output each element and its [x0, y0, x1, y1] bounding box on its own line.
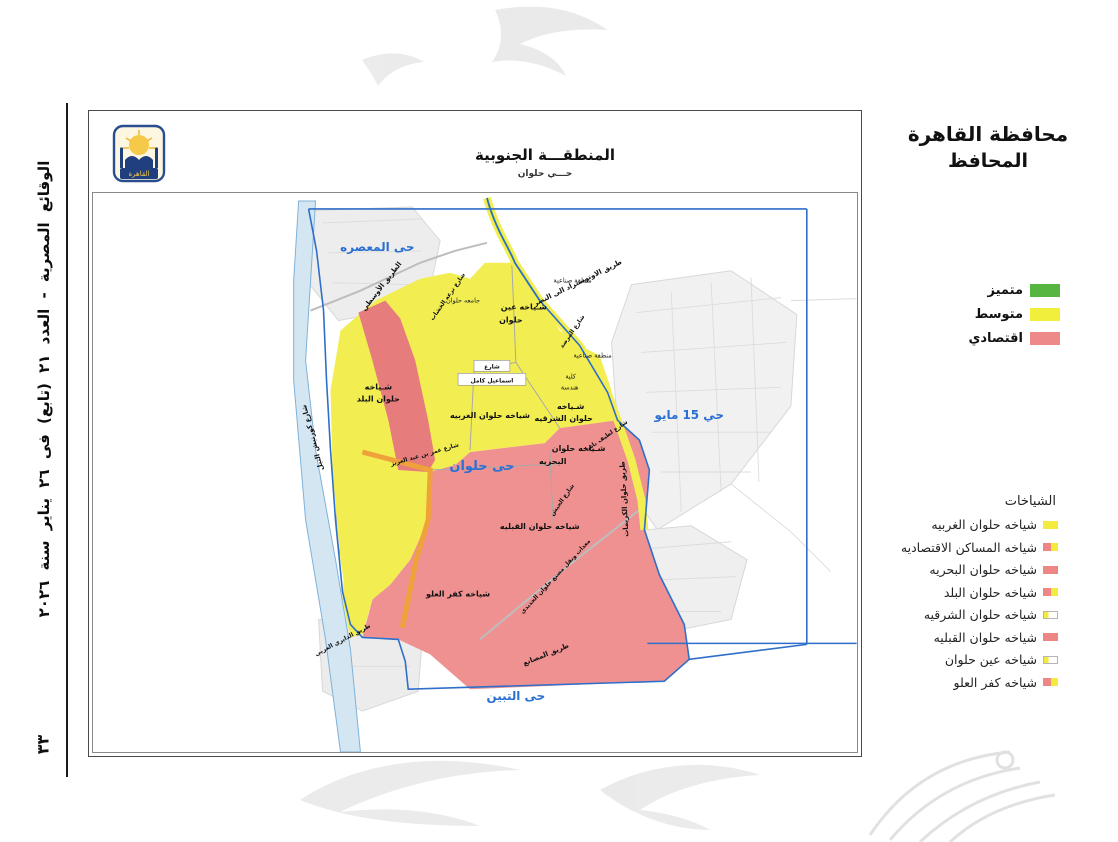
legend-row: شياخه عين حلوان: [901, 652, 1058, 667]
map-label: شـياخه: [365, 382, 393, 391]
map-label: حى التبين: [486, 689, 545, 703]
legend-label: متوسط: [975, 307, 1023, 322]
map-label: البحريه: [539, 457, 567, 466]
legend-swatch: [1043, 678, 1058, 686]
cairo-governorate-logo: القاهرة: [112, 124, 166, 188]
legend-label: شياخه حلوان الشرقيه: [924, 607, 1037, 622]
map-label: شـياخه: [557, 402, 585, 411]
map-label: حلوان البلد: [357, 394, 400, 403]
map-label: شياخه حلوان الغربيه: [450, 411, 530, 420]
map-title: المنطقـــة الجنوبية: [435, 146, 655, 164]
logo-text: القاهرة: [129, 170, 150, 178]
legend-swatch: [1043, 588, 1058, 596]
map-label: طريق الاوتوستراد الى النصر: [531, 258, 623, 308]
governor-subtitle: المحافظ: [878, 150, 1098, 172]
legend-label: شياخه حلوان الغربيه: [931, 517, 1037, 532]
legend-swatch-red: [1030, 332, 1060, 345]
watermark-swoosh-bottom: [300, 761, 760, 830]
legend-swatch: [1043, 566, 1058, 574]
sheyakhat-legend: الشياخات شياخه حلوان الغربيه شياخه المسا…: [901, 494, 1058, 697]
page-number: ٣٣: [34, 725, 53, 765]
quality-legend: متميز متوسط اقتصادي: [968, 283, 1060, 355]
legend-row: اقتصادي: [968, 331, 1060, 346]
legend-label: شياخه حلوان البحريه: [929, 562, 1037, 577]
governorate-title: محافظة القاهرة: [878, 120, 1098, 148]
watermark-eagle: [870, 752, 1055, 842]
helwan-map: حى المعصرهحي 15 مايوحى حلوانحى التبينشـي…: [93, 193, 857, 752]
map-label: كلية: [565, 372, 577, 380]
legend-row: شياخه حلوان الغربيه: [901, 517, 1058, 532]
map-canvas: حى المعصرهحي 15 مايوحى حلوانحى التبينشـي…: [92, 192, 858, 753]
legend-swatch: [1043, 633, 1058, 641]
legend-label: شياخه حلوان البلد: [944, 585, 1037, 600]
legend-label: شياخه عين حلوان: [945, 652, 1037, 667]
map-label: منطقة صناعية: [573, 351, 611, 359]
legend-row: شياخه حلوان البحريه: [901, 562, 1058, 577]
legend-swatch: [1043, 543, 1058, 551]
map-subtitle: حـــي حلوان: [435, 169, 655, 179]
gazette-page: الوقائع المصرية - العدد ٢١ (تابع) فى ٢٦ …: [0, 0, 1118, 842]
legend-row: متميز: [968, 283, 1060, 298]
map-label: شياخه كفر العلو: [425, 590, 490, 599]
map-label: حى المعصره: [340, 240, 414, 254]
map-label: شياخه حلوان القبليه: [500, 522, 580, 531]
legend-row: شياخه حلوان البلد: [901, 585, 1058, 600]
legend-label: شياخه حلوان القبليه: [934, 630, 1037, 645]
map-label: شارع: [484, 363, 500, 370]
legend-row: شياخه المساكن الاقتصاديه: [901, 540, 1058, 555]
sheyakhat-legend-title: الشياخات: [901, 494, 1058, 509]
legend-swatch-green: [1030, 284, 1060, 297]
legend-label: شياخه كفر العلو: [953, 675, 1037, 690]
divider-rule: [66, 103, 68, 777]
legend-label: متميز: [988, 283, 1023, 298]
legend-swatch: [1043, 611, 1058, 619]
legend-swatch: [1043, 656, 1058, 664]
map-label: حلوان: [499, 316, 523, 325]
legend-row: متوسط: [968, 307, 1060, 322]
map-label: حلوان الشرقيه: [534, 414, 592, 423]
map-label: اسماعيل كامل: [471, 377, 514, 384]
gazette-issue-line: الوقائع المصرية - العدد ٢١ (تابع) فى ٢٦ …: [35, 124, 53, 654]
legend-swatch-yellow: [1030, 308, 1060, 321]
legend-label: اقتصادي: [968, 331, 1023, 346]
map-label: هندسة: [561, 383, 579, 391]
legend-row: شياخه كفر العلو: [901, 675, 1058, 690]
legend-row: شياخه حلوان القبليه: [901, 630, 1058, 645]
map-label: حى حلوان: [449, 459, 514, 474]
map-label: حي 15 مايو: [653, 408, 723, 423]
legend-row: شياخه حلوان الشرقيه: [901, 607, 1058, 622]
legend-label: شياخه المساكن الاقتصاديه: [901, 540, 1037, 555]
watermark-swoosh-top: [362, 7, 608, 86]
legend-swatch: [1043, 521, 1058, 529]
